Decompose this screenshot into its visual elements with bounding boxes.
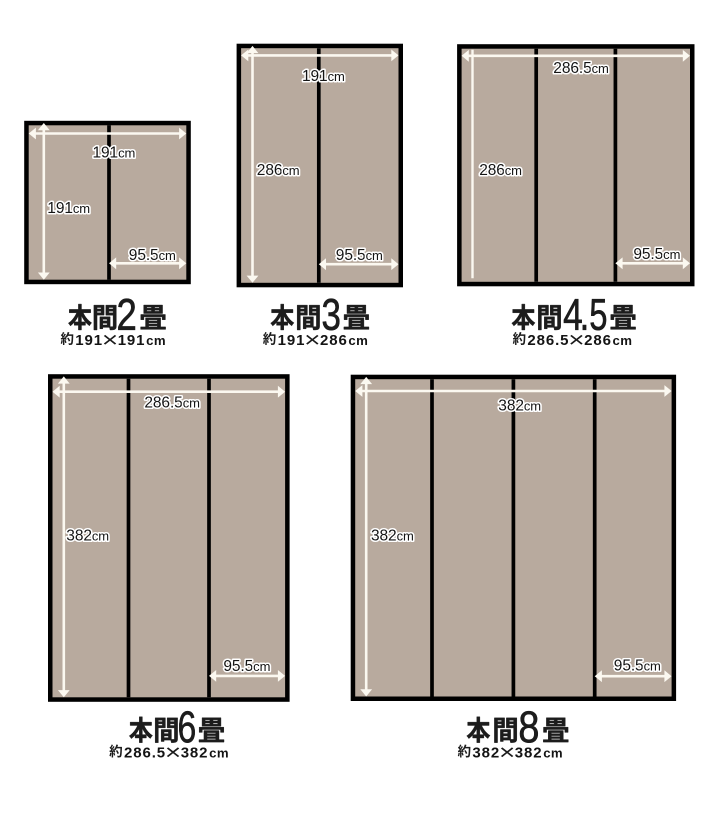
svg-text:191cm: 191cm [47, 200, 90, 217]
svg-text:cm: cm [543, 746, 563, 761]
svg-text:191cm: 191cm [302, 68, 345, 85]
svg-text:382: 382 [472, 745, 500, 762]
svg-text:286: 286 [320, 332, 348, 349]
svg-text:286: 286 [584, 332, 612, 349]
svg-text:95.5cm: 95.5cm [336, 247, 383, 264]
svg-text:95.5cm: 95.5cm [614, 658, 661, 675]
svg-text:95.5cm: 95.5cm [129, 247, 176, 264]
svg-text:cm: cm [146, 333, 166, 348]
svg-text:382cm: 382cm [66, 528, 109, 545]
svg-text:cm: cm [348, 333, 368, 348]
svg-text:286.5cm: 286.5cm [553, 60, 608, 77]
svg-text:cm: cm [613, 333, 633, 348]
svg-text:191cm: 191cm [93, 145, 136, 162]
svg-text:191: 191 [75, 332, 103, 349]
svg-text:95.5cm: 95.5cm [633, 246, 680, 263]
svg-text:191: 191 [118, 332, 146, 349]
svg-text:382: 382 [515, 745, 543, 762]
svg-text:286.5: 286.5 [124, 745, 166, 762]
svg-text:286.5cm: 286.5cm [144, 394, 199, 411]
svg-text:286cm: 286cm [257, 162, 300, 179]
svg-text:191: 191 [278, 332, 306, 349]
svg-text:382cm: 382cm [371, 528, 414, 545]
svg-text:286cm: 286cm [479, 162, 522, 179]
svg-text:382: 382 [181, 745, 209, 762]
svg-text:382cm: 382cm [498, 398, 541, 415]
svg-text:cm: cm [209, 746, 229, 761]
svg-text:95.5cm: 95.5cm [223, 658, 270, 675]
svg-text:286.5: 286.5 [527, 332, 569, 349]
